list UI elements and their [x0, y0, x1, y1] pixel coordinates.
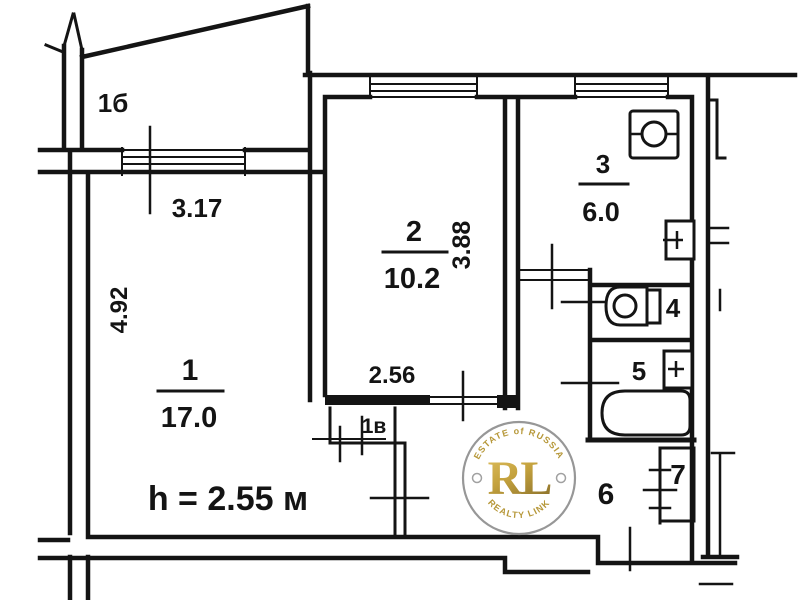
washbasin-icon: [664, 351, 692, 388]
room-bedroom-area: 10.2: [384, 263, 440, 295]
bedroom-window-icon: [370, 77, 477, 97]
floor-plan: 1б 3.17 1 17.0 4.92 2 10.2 3.88 2.56 1в …: [0, 0, 800, 600]
room-bathroom-number: 5: [632, 356, 646, 386]
wardrobe-number: 1в: [362, 415, 387, 438]
bedroom-bottom-wall: [325, 395, 430, 405]
room-living-area: 17.0: [161, 402, 217, 434]
watermark-dot-left: [473, 474, 482, 483]
dim-balcony-width: 3.17: [172, 193, 223, 223]
ceiling-height-note: h = 2.55 м: [148, 480, 308, 518]
room-kitchen-area: 6.0: [582, 197, 620, 227]
stove-icon: [663, 221, 694, 259]
floor-plan-page: 1б 3.17 1 17.0 4.92 2 10.2 3.88 2.56 1в …: [0, 0, 800, 600]
room-bedroom-number: 2: [406, 216, 422, 248]
room-hallway-number: 6: [598, 478, 615, 511]
kitchen-window-icon: [575, 77, 668, 97]
fixtures: [602, 111, 694, 435]
dim-living-depth: 4.92: [106, 287, 133, 334]
sink-icon: [630, 111, 678, 158]
dim-bedroom-depth: 3.88: [448, 221, 476, 270]
windows: [122, 77, 668, 175]
watermark-dot-right: [557, 474, 566, 483]
room-wc-number: 4: [666, 293, 681, 323]
room-living-number: 1: [182, 354, 199, 387]
room-kitchen-number: 3: [596, 149, 610, 179]
watermark: ESTATE of RUSSIA REALTY LINK RL: [463, 422, 575, 534]
watermark-monogram: RL: [488, 452, 551, 505]
dim-bedroom-width: 2.56: [369, 362, 416, 389]
balcony-number: 1б: [98, 88, 129, 118]
toilet-icon: [606, 287, 660, 325]
bedroom-corner-wall: [497, 395, 518, 408]
bathtub-icon: [602, 391, 690, 435]
room-closet-number: 7: [670, 459, 686, 490]
